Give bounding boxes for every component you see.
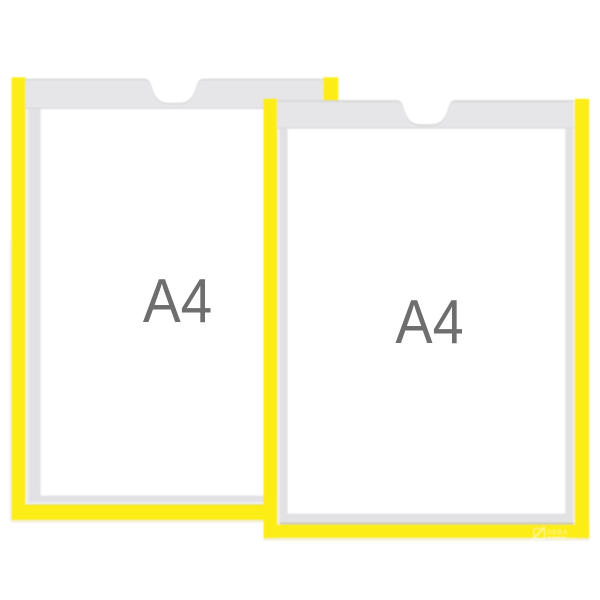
svg-text:A4: A4 — [395, 288, 463, 356]
svg-text:ЛЕВА: ЛЕВА — [547, 530, 568, 537]
svg-text:A4: A4 — [143, 265, 212, 335]
